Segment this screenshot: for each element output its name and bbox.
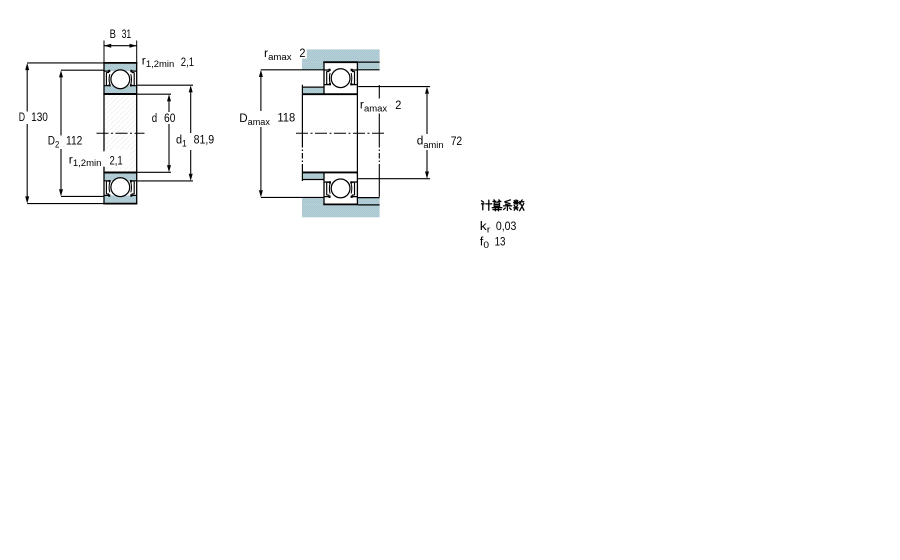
- svg-text:72: 72: [451, 136, 463, 148]
- svg-text:d: d: [152, 113, 157, 125]
- svg-text:0,03: 0,03: [496, 221, 517, 233]
- svg-text:118: 118: [277, 113, 295, 125]
- svg-text:B: B: [110, 29, 117, 41]
- svg-text:13: 13: [495, 237, 506, 249]
- svg-text:2,1: 2,1: [181, 57, 194, 69]
- svg-text:2,1: 2,1: [110, 156, 123, 168]
- svg-text:2: 2: [299, 48, 305, 60]
- svg-text:D: D: [19, 112, 25, 124]
- svg-text:112: 112: [66, 136, 82, 148]
- svg-text:60: 60: [164, 113, 175, 125]
- svg-text:130: 130: [31, 112, 48, 124]
- svg-text:81,9: 81,9: [194, 135, 215, 147]
- svg-text:31: 31: [122, 29, 132, 41]
- svg-text:2: 2: [395, 100, 401, 112]
